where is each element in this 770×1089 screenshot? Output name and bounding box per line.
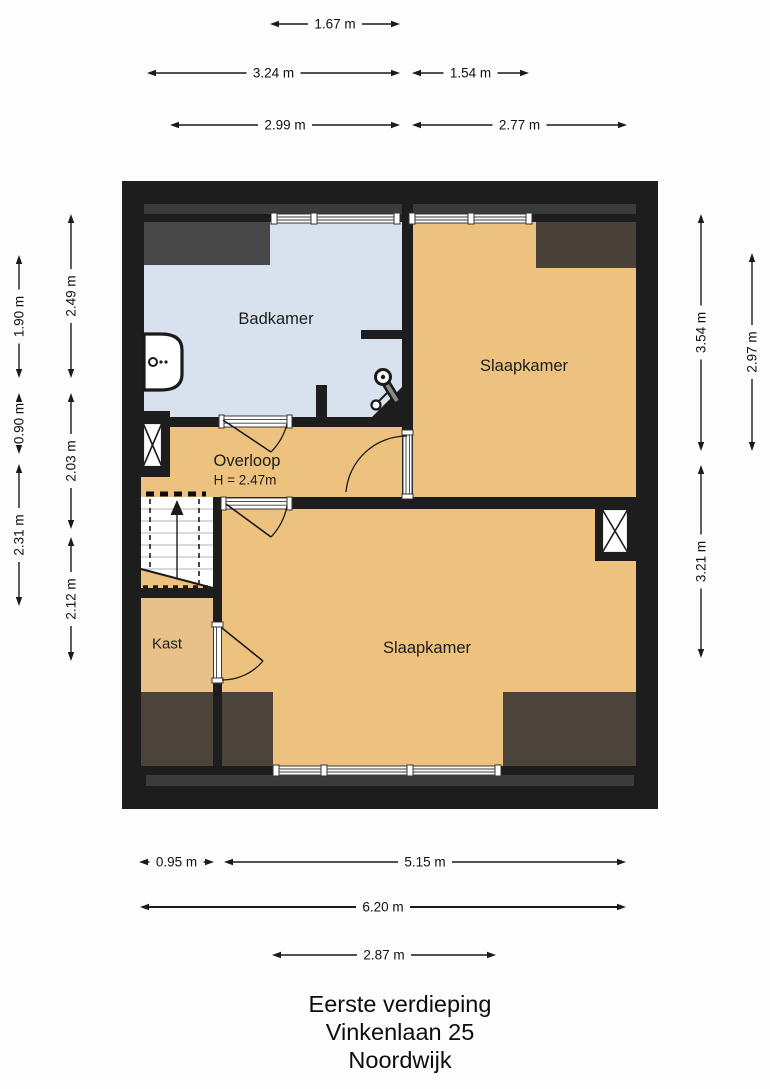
svg-text:1.67 m: 1.67 m [314, 17, 355, 32]
attic-area-bottom-right [503, 692, 636, 766]
dim-arrow: 3.24 m [147, 66, 400, 81]
title-address: Vinkenlaan 25 [326, 1019, 475, 1045]
top-eaves-band [144, 204, 636, 214]
sink-icon [144, 334, 182, 390]
svg-text:2.12 m: 2.12 m [64, 578, 79, 619]
dim-arrow: 2.87 m [272, 948, 496, 963]
dim-arrow: 5.15 m [224, 855, 626, 870]
dim-arrow: 2.49 m [64, 214, 79, 378]
attic-area-bottom-left2 [222, 692, 273, 766]
overloop-height-note: H = 2.47m [214, 473, 277, 488]
dim-arrow: 1.90 m [12, 255, 27, 378]
svg-text:1.54 m: 1.54 m [450, 66, 491, 81]
dimensions-left: 1.90 m 0.90 m 2.31 m 2.49 m 2.03 m 2.12 … [12, 214, 79, 661]
dim-arrow: 1.67 m [270, 17, 400, 32]
dim-arrow: 0.90 m [12, 393, 27, 454]
slaapkamer2-label: Slaapkamer [383, 639, 472, 657]
dimensions-bottom: 0.95 m 5.15 m 6.20 m 2.87 m [139, 855, 626, 963]
slaapkamer1-label: Slaapkamer [480, 357, 569, 375]
svg-text:2.77 m: 2.77 m [499, 118, 540, 133]
dim-arrow: 6.20 m [140, 900, 626, 915]
floorplan-page: Badkamer Slaapkamer Overloop H = 2.47m K… [0, 0, 770, 1089]
badkamer-slope-area [144, 222, 270, 265]
svg-text:2.97 m: 2.97 m [745, 331, 760, 372]
svg-text:2.03 m: 2.03 m [64, 440, 79, 481]
svg-text:2.31 m: 2.31 m [12, 514, 27, 555]
dim-arrow: 1.54 m [412, 66, 529, 81]
svg-text:5.15 m: 5.15 m [404, 855, 445, 870]
dim-arrow: 3.21 m [694, 465, 709, 658]
title-city: Noordwijk [348, 1047, 451, 1073]
title-block: Eerste verdieping Vinkenlaan 25 Noordwij… [309, 991, 492, 1073]
badkamer-window [271, 213, 400, 224]
dim-arrow: 2.12 m [64, 537, 79, 661]
svg-text:0.95 m: 0.95 m [156, 855, 197, 870]
bottom-eaves-band [146, 775, 634, 786]
svg-text:2.99 m: 2.99 m [264, 118, 305, 133]
dim-arrow: 2.97 m [745, 253, 760, 451]
badkamer-label: Badkamer [238, 310, 314, 328]
dimensions-top: 1.67 m 3.24 m 1.54 m 2.99 m 2.77 m [147, 17, 627, 133]
overloop-label: Overloop [214, 452, 281, 470]
svg-text:3.24 m: 3.24 m [253, 66, 294, 81]
svg-text:3.54 m: 3.54 m [694, 312, 709, 353]
svg-text:1.90 m: 1.90 m [12, 296, 27, 337]
stairs [141, 494, 213, 589]
kast-label: Kast [152, 636, 183, 653]
dim-arrow: 2.77 m [412, 118, 627, 133]
attic-area-bottom-left1 [141, 692, 213, 766]
slaapkamer2-window [273, 765, 501, 776]
svg-text:2.87 m: 2.87 m [363, 948, 404, 963]
floorplan-svg: Badkamer Slaapkamer Overloop H = 2.47m K… [0, 0, 770, 1089]
dim-arrow: 0.95 m [139, 855, 214, 870]
floorplan: Badkamer Slaapkamer Overloop H = 2.47m K… [122, 181, 658, 809]
title-floor: Eerste verdieping [309, 991, 492, 1017]
svg-text:2.49 m: 2.49 m [64, 275, 79, 316]
svg-text:0.90 m: 0.90 m [12, 403, 27, 444]
slaapkamer1-slope-area [536, 222, 636, 268]
dim-arrow: 3.54 m [694, 214, 709, 451]
dim-arrow: 2.03 m [64, 393, 79, 529]
slaapkamer1-window [409, 213, 532, 224]
dim-arrow: 2.99 m [170, 118, 400, 133]
svg-text:3.21 m: 3.21 m [694, 541, 709, 582]
stairs-kast-wall [141, 588, 213, 598]
svg-text:6.20 m: 6.20 m [362, 900, 403, 915]
dimensions-right: 3.54 m 3.21 m 2.97 m [694, 214, 760, 658]
dim-arrow: 2.31 m [12, 464, 27, 606]
